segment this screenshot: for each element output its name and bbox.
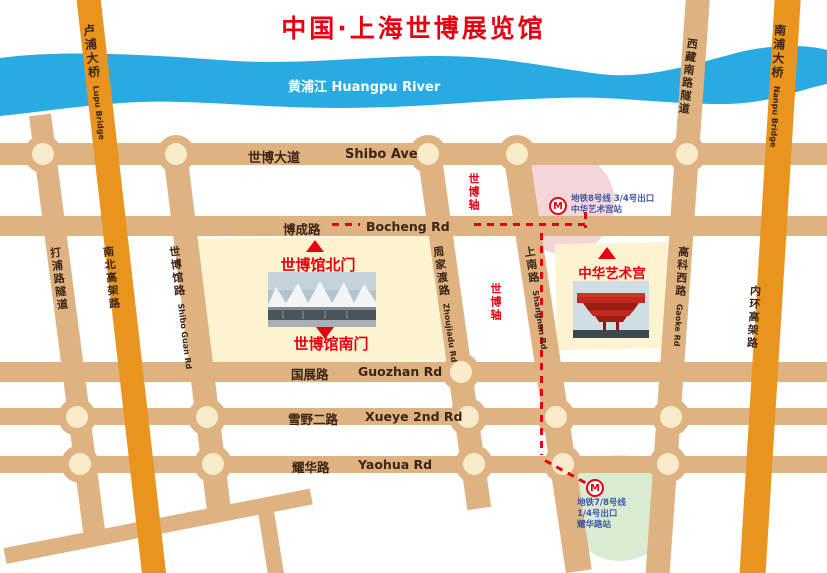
intersection-circle [649,445,687,483]
metro-line78-station-line: 耀华路站 [577,520,626,531]
metro-line78-line: 地铁7/8号线 [577,498,626,509]
art-palace-marker-icon [598,247,616,259]
label-yaohua-cn: 耀华路 [292,457,330,476]
intersection-circle [668,135,706,173]
intersection-circle [157,135,195,173]
river-label: 黄浦江 Huangpu River [288,76,440,95]
metro-line8-exit-line: 地铁8号线 3/4号出口 [571,194,654,205]
label-bocheng-cn: 博成路 [283,219,321,238]
intersection-circle [498,135,536,173]
expo-south-gate-label: 世博馆南门 [269,333,393,354]
metro-line78-station-label: 地铁7/8号线 1/4号出口 耀华路站 [577,498,626,531]
expo-north-gate-label: 世博馆北门 [256,254,380,275]
metro8-route-dash-a [332,223,360,226]
intersection-circle [24,135,62,173]
expo-axis-label-north: 世博轴 [465,173,481,212]
page-title: 中国·上海世博展览馆 [0,9,827,45]
label-guozhan-en: Guozhan Rd [358,364,442,379]
label-xueye-en: Xueye 2nd Rd [365,409,462,424]
label-bocheng-en: Bocheng Rd [366,219,450,234]
metro-line78-logo-icon: M [586,479,604,497]
china-art-palace-photo [573,281,649,338]
intersection-circle [455,445,493,483]
road-bottom-stub [257,504,284,573]
intersection-circle [61,445,99,483]
expo-hall-photo [268,272,376,327]
label-guozhan-cn: 国展路 [291,364,329,383]
intersection-circle [188,398,226,436]
metro8-route-dash-b [474,223,588,226]
map: 黄浦江 Huangpu River 世博轴 世博轴 世博大道 Shibo Ave… [0,0,827,573]
metro-line8-station-label: 地铁8号线 3/4号出口 中华艺术宫站 [571,194,654,216]
metro-line8-station-line: 中华艺术宫站 [571,205,654,216]
art-palace-label: 中华艺术宫 [560,262,664,282]
north-gate-marker-icon [306,240,324,252]
label-shibo-ave-en: Shibo Ave [345,147,418,162]
label-yaohua-en: Yaohua Rd [358,457,432,472]
road-dapu-tunnel [29,114,107,546]
intersection-circle [652,398,690,436]
intersection-circle [58,398,96,436]
label-xueye-cn: 雪野二路 [288,409,338,428]
intersection-circle [194,445,232,483]
expo-axis-label-south: 世博轴 [487,283,503,322]
metro-line8-logo-icon: M [549,197,567,215]
label-shibo-ave-cn: 世博大道 [248,147,300,166]
metro-line78-exit-line: 1/4号出口 [577,509,626,520]
